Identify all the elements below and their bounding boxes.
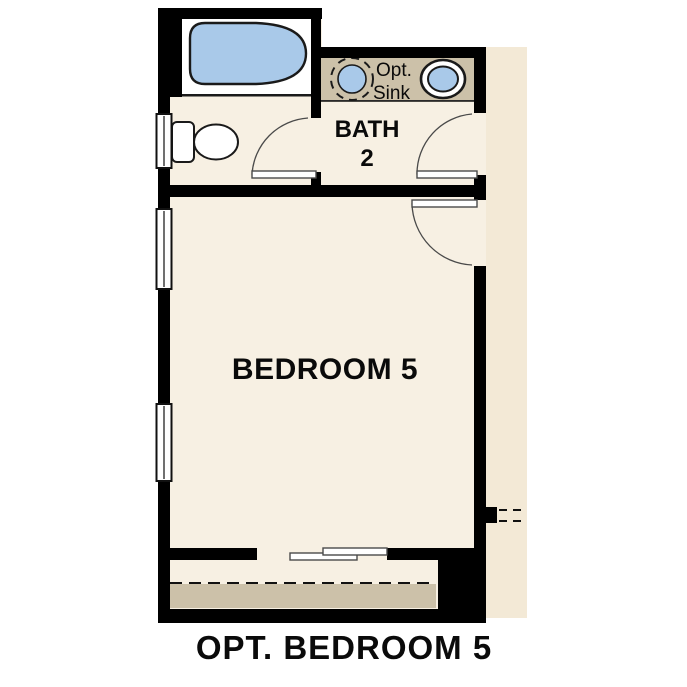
bottom-wall <box>158 609 486 623</box>
closet-carpet <box>166 584 436 608</box>
optional-sink-label-line2: Sink <box>373 83 410 104</box>
water-closet-wall-upper <box>311 8 321 118</box>
optional-sink-basin-icon <box>338 65 366 93</box>
bypass-door-front-panel <box>323 548 387 555</box>
left-wall <box>158 8 170 623</box>
closet-front-wall-left <box>158 548 257 560</box>
optional-sink-label-line1: Opt. <box>376 60 412 81</box>
floor-plan-drawing: BATH 2 Opt. Sink BEDROOM 5 OPT. BEDROOM … <box>0 0 687 687</box>
bath-bedroom-divider-wall <box>158 185 486 197</box>
toilet-tank <box>172 122 194 162</box>
bath-window <box>157 114 172 168</box>
right-wall-upper <box>474 47 486 113</box>
right-wall-lower <box>474 266 486 548</box>
plan-caption: OPT. BEDROOM 5 <box>196 629 492 666</box>
right-wall-stub <box>486 507 497 523</box>
floor-plan-page: BATH 2 Opt. Sink BEDROOM 5 OPT. BEDROOM … <box>0 0 687 687</box>
bath-top-wall <box>311 47 486 58</box>
right-wall-between-doors <box>474 175 486 200</box>
bath-room-label-line1: BATH <box>335 116 400 143</box>
toilet-bowl <box>194 125 238 160</box>
water-closet-door-leaf <box>252 171 316 178</box>
bathtub-icon <box>190 23 306 84</box>
room-floors <box>158 19 486 609</box>
tub-room-top-wall <box>158 8 322 19</box>
bath-entry-door-leaf <box>417 171 477 178</box>
hallway-floor <box>486 47 527 618</box>
bedroom-entry-door-leaf <box>412 200 477 207</box>
tub-corner-wall <box>170 18 182 97</box>
bath-room-label-line2: 2 <box>360 145 373 172</box>
bedroom-room-label: BEDROOM 5 <box>232 353 418 386</box>
sink-basin-icon <box>428 67 458 92</box>
bedroom-lower-window <box>157 404 172 481</box>
toilet-icon <box>172 122 238 162</box>
tub-platform-edge <box>182 94 311 97</box>
bedroom-upper-window <box>157 209 172 289</box>
